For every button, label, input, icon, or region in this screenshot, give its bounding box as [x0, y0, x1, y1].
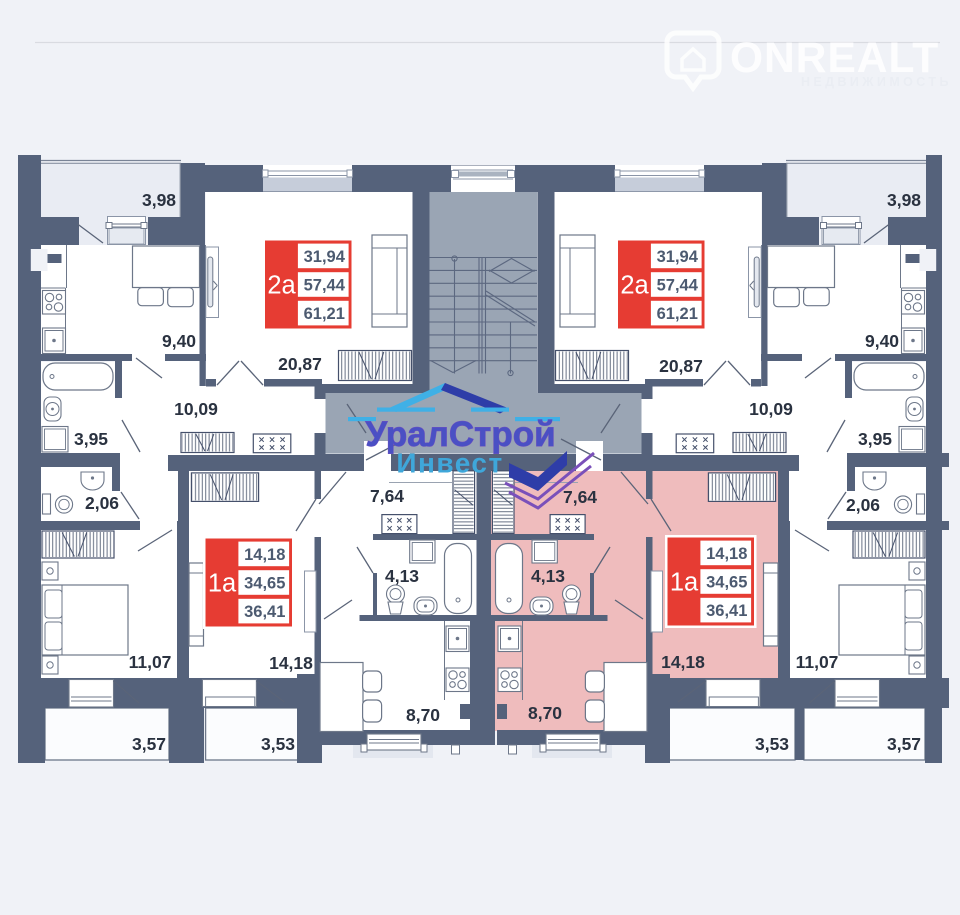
svg-text:11,07: 11,07 — [129, 652, 172, 672]
svg-text:4,13: 4,13 — [531, 566, 565, 586]
svg-text:НЕДВИЖИМОСТЬ: НЕДВИЖИМОСТЬ — [801, 75, 952, 89]
svg-text:8,70: 8,70 — [406, 705, 440, 725]
svg-text:14,18: 14,18 — [706, 545, 747, 563]
svg-text:57,44: 57,44 — [304, 277, 346, 295]
svg-text:9,40: 9,40 — [865, 331, 899, 351]
svg-text:2,06: 2,06 — [846, 495, 880, 515]
svg-text:36,41: 36,41 — [244, 603, 285, 621]
svg-text:2,06: 2,06 — [85, 493, 119, 513]
svg-text:3,57: 3,57 — [887, 734, 921, 754]
svg-text:57,44: 57,44 — [657, 277, 699, 295]
svg-text:14,18: 14,18 — [661, 652, 705, 672]
svg-text:14,18: 14,18 — [244, 546, 285, 564]
svg-text:34,65: 34,65 — [244, 575, 285, 593]
svg-text:3,53: 3,53 — [261, 734, 295, 754]
svg-text:3,95: 3,95 — [74, 429, 108, 449]
svg-text:3,98: 3,98 — [142, 190, 176, 210]
svg-text:2а: 2а — [620, 272, 649, 300]
svg-text:36,41: 36,41 — [706, 602, 747, 620]
svg-text:10,09: 10,09 — [174, 399, 218, 419]
svg-text:1а: 1а — [208, 570, 237, 598]
svg-text:10,09: 10,09 — [749, 399, 793, 419]
svg-text:2а: 2а — [267, 272, 296, 300]
svg-text:4,13: 4,13 — [385, 566, 419, 586]
svg-text:20,87: 20,87 — [659, 356, 703, 376]
svg-text:31,94: 31,94 — [657, 248, 699, 266]
svg-text:3,53: 3,53 — [755, 734, 789, 754]
svg-text:Инвест: Инвест — [396, 448, 503, 479]
svg-text:3,95: 3,95 — [858, 429, 892, 449]
svg-text:34,65: 34,65 — [706, 574, 747, 592]
svg-text:14,18: 14,18 — [269, 653, 313, 673]
svg-text:11,07: 11,07 — [796, 652, 839, 672]
svg-text:61,21: 61,21 — [304, 305, 345, 323]
svg-text:1а: 1а — [670, 569, 699, 597]
svg-text:7,64: 7,64 — [563, 487, 597, 507]
svg-text:20,87: 20,87 — [278, 354, 322, 374]
svg-text:3,57: 3,57 — [132, 734, 166, 754]
svg-text:31,94: 31,94 — [304, 248, 346, 266]
svg-text:3,98: 3,98 — [887, 190, 921, 210]
svg-text:8,70: 8,70 — [528, 703, 562, 723]
svg-text:61,21: 61,21 — [657, 305, 698, 323]
svg-text:7,64: 7,64 — [370, 486, 404, 506]
svg-text:9,40: 9,40 — [162, 331, 196, 351]
